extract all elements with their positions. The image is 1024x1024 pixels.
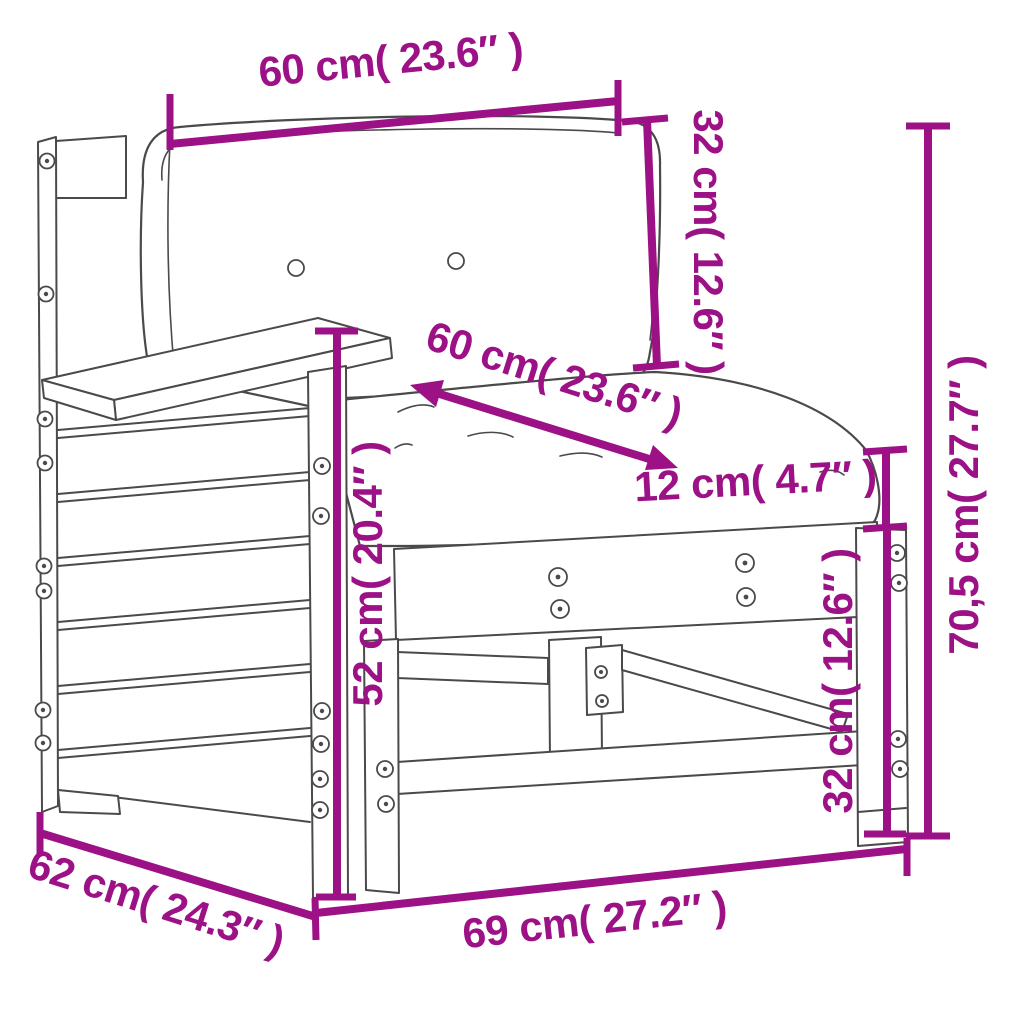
dimension-width: 69 cm( 27.2″ ) bbox=[316, 838, 907, 957]
armrest-slats bbox=[58, 408, 310, 822]
dimension-tick bbox=[863, 526, 907, 529]
armrest-front-post bbox=[308, 366, 348, 898]
dimension-tick bbox=[315, 898, 316, 940]
dimension-label-back-cushion-height: 32 cm( 12.6″ ) bbox=[685, 109, 732, 374]
back-frame-rail bbox=[56, 136, 126, 198]
sofa-dimension-drawing: 60 cm( 23.6″ ) 32 cm( 12.6″ ) 60 cm( 23.… bbox=[0, 0, 1024, 1024]
dimension-label-total-height: 70,5 cm( 27.7″ ) bbox=[940, 355, 987, 654]
furniture-drawing bbox=[36, 116, 909, 898]
cushion-button bbox=[288, 260, 304, 276]
dimension-label-seat-frame-height: 32 cm( 12.6″ ) bbox=[814, 548, 861, 813]
dimension-depth: 62 cm( 24.3″ ) bbox=[23, 812, 316, 964]
armrest-left-foot bbox=[58, 790, 120, 814]
dimension-label-back-cushion-width: 60 cm( 23.6″ ) bbox=[256, 23, 525, 95]
cushion-button bbox=[448, 253, 464, 269]
dimension-total-height: 70,5 cm( 27.7″ ) bbox=[906, 126, 987, 836]
dimension-label-armrest-height: 52 cm( 20.4″ ) bbox=[344, 441, 391, 706]
dimension-tick bbox=[633, 364, 679, 368]
dimension-label-depth: 62 cm( 24.3″ ) bbox=[23, 840, 290, 965]
product-dimension-diagram: 60 cm( 23.6″ ) 32 cm( 12.6″ ) 60 cm( 23.… bbox=[0, 0, 1024, 1024]
